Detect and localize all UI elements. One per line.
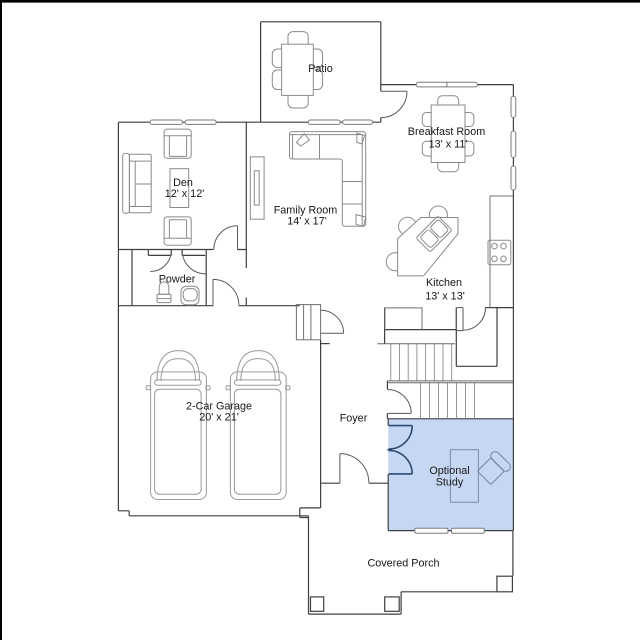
svg-text:13' x 13': 13' x 13'	[425, 291, 465, 303]
svg-text:Covered Porch: Covered Porch	[367, 558, 439, 570]
svg-text:Patio: Patio	[308, 63, 333, 75]
svg-text:Kitchen: Kitchen	[426, 277, 462, 289]
svg-text:Foyer: Foyer	[340, 413, 368, 425]
svg-text:13' x 11': 13' x 11'	[429, 139, 468, 151]
svg-text:12' x 12': 12' x 12'	[165, 188, 205, 200]
svg-text:Optional: Optional	[429, 465, 469, 477]
svg-text:14' x 17': 14' x 17'	[287, 216, 327, 228]
svg-text:Breakfast Room: Breakfast Room	[408, 126, 485, 138]
svg-text:20' x 21': 20' x 21'	[199, 412, 239, 424]
svg-text:Powder: Powder	[159, 274, 196, 286]
svg-text:Study: Study	[436, 477, 464, 489]
